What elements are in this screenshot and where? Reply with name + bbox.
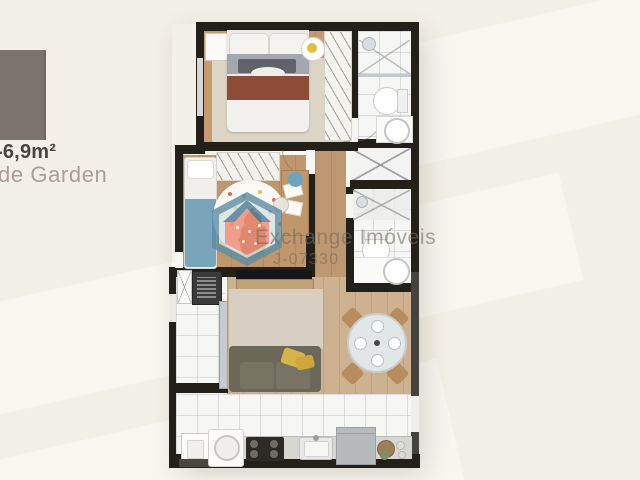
sofa-seat (240, 362, 274, 389)
washer-drum (214, 435, 240, 461)
place-setting (354, 337, 367, 350)
watermark-brand: Exchange Imóveis (255, 226, 436, 250)
bed-duvet (227, 100, 309, 132)
terrace-window (169, 294, 176, 322)
washing-machine (208, 429, 244, 467)
burner (270, 440, 278, 448)
area-label: -6,9m² (0, 141, 56, 164)
faucet-icon (313, 435, 319, 441)
burner (250, 440, 258, 448)
shower1-divider (358, 74, 411, 77)
master-bed (227, 30, 309, 132)
bed-brown-runner (227, 76, 309, 100)
small-shaft (177, 270, 192, 304)
table-centerpiece (374, 340, 380, 346)
kitchen-window (411, 396, 419, 432)
toilet1-tank (397, 89, 408, 113)
service-shaft (350, 148, 411, 182)
logo-dots (236, 226, 239, 229)
sink1 (384, 118, 410, 144)
sink2 (383, 258, 410, 285)
tv (236, 270, 312, 279)
place-setting (371, 354, 384, 367)
living-rug (229, 289, 323, 349)
kids-wardrobe (216, 152, 280, 181)
place-setting (371, 320, 384, 333)
wall-right-lower (411, 272, 419, 468)
photo-thumbnail (0, 50, 46, 140)
cooktop (246, 437, 284, 461)
pillow (187, 160, 214, 179)
wall-shaft-bottom (350, 180, 419, 189)
burner (270, 450, 278, 458)
counter-dish (396, 441, 405, 450)
shower-head-icon (362, 37, 376, 51)
wall-bedrooms-divider (196, 142, 358, 151)
counter-dish (398, 451, 406, 459)
shower-head-icon (356, 196, 368, 208)
place-setting (388, 337, 401, 350)
counter-plant (380, 451, 389, 460)
kids-service-gap (175, 252, 183, 268)
unit-type-label: de Garden (0, 162, 107, 188)
floorplan-image: -6,9m² de Garden (0, 0, 640, 480)
tub-basin (187, 440, 204, 459)
side-table-lamp (307, 43, 317, 53)
kitchen-sink (299, 437, 333, 460)
desk-stool (288, 172, 303, 187)
refrigerator (336, 427, 376, 465)
ac-grille (197, 277, 216, 298)
ac-condenser (192, 271, 222, 305)
watermark-code: J-07330 (273, 251, 339, 269)
dining-table (347, 313, 407, 373)
sliding-glass-door (219, 301, 228, 389)
master-window (197, 58, 203, 116)
throw-pillow (295, 354, 315, 370)
burner (250, 450, 258, 458)
sink-basin (304, 441, 329, 457)
sofa (229, 346, 321, 392)
fridge-door-line (337, 433, 375, 434)
master-wardrobe (324, 31, 352, 141)
